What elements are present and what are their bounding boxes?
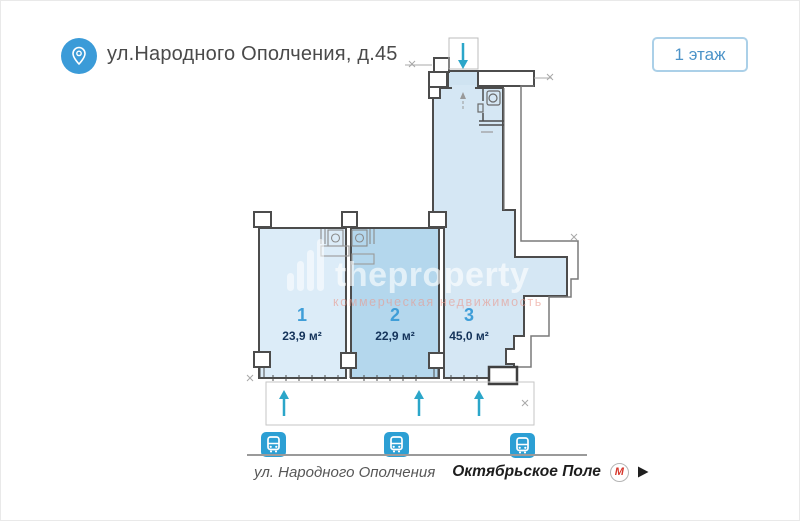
- room-1-shape[interactable]: [259, 228, 346, 378]
- room-3-shape[interactable]: [433, 85, 567, 378]
- street-divider-line: [247, 454, 587, 456]
- footer-caption: ул. Народного Ополчения Октябрьское Поле…: [254, 461, 649, 483]
- wall-segment: [478, 71, 534, 86]
- metro-station-name: Октябрьское Поле: [452, 463, 601, 481]
- room-2-shape[interactable]: [351, 228, 439, 378]
- corner-pier: [489, 367, 517, 384]
- street-name: ул. Народного Ополчения: [254, 464, 435, 481]
- direction-arrow-icon: [638, 466, 649, 478]
- metro-icon: М: [610, 463, 629, 482]
- floorplan-card: ул.Народного Ополчения, д.45 1 этаж: [0, 0, 800, 521]
- entrance-arrow-top: [458, 43, 468, 69]
- dimension-box-bottom: [266, 382, 534, 425]
- entrance-arrows-bottom: [279, 390, 484, 416]
